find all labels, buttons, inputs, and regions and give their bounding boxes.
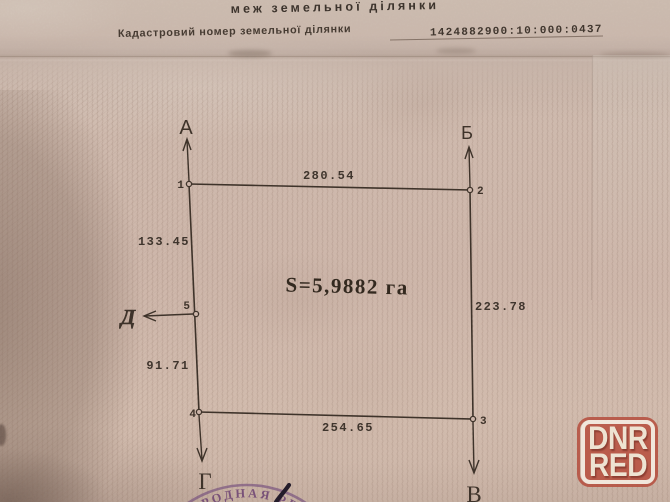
svg-text:Д: Д	[119, 305, 136, 329]
svg-text:4: 4	[189, 409, 196, 421]
svg-text:280.54: 280.54	[303, 169, 355, 183]
svg-text:S=5,9882 га: S=5,9882 га	[285, 273, 409, 300]
svg-text:В: В	[466, 482, 481, 502]
svg-text:3: 3	[480, 416, 487, 428]
svg-text:133.45: 133.45	[138, 235, 190, 249]
svg-text:А: А	[179, 117, 193, 139]
svg-text:Г: Г	[198, 469, 211, 494]
svg-text:1: 1	[177, 180, 184, 192]
svg-text:Б: Б	[461, 123, 473, 143]
svg-text:2: 2	[477, 186, 484, 198]
svg-text:223.78: 223.78	[475, 300, 527, 314]
svg-text:5: 5	[183, 301, 190, 313]
svg-text:254.65: 254.65	[322, 421, 374, 435]
svg-text:91.71: 91.71	[146, 359, 189, 373]
